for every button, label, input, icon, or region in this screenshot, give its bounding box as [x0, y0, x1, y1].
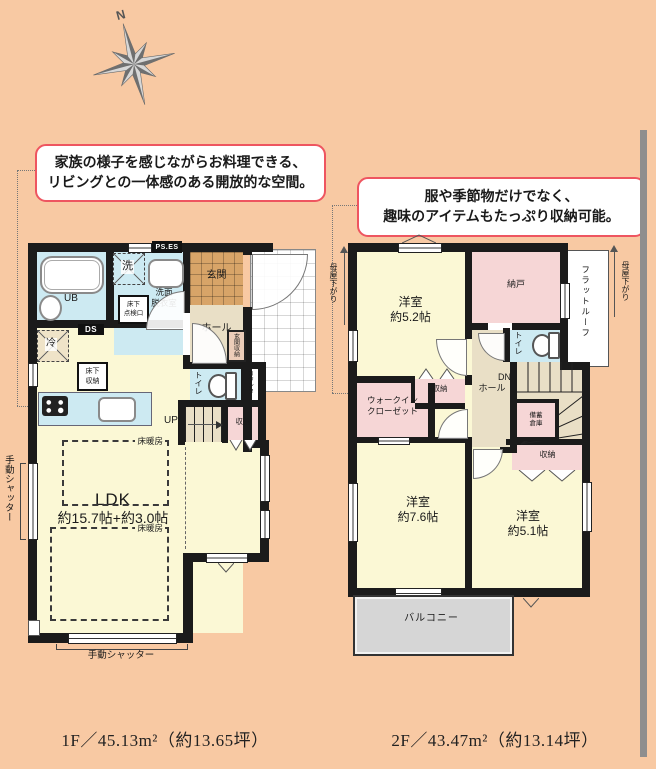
window: [560, 283, 570, 319]
dimension-arrow: [340, 246, 348, 253]
shutter-mark-icon: [523, 598, 539, 608]
genkan-storage-label: 玄関収納: [231, 333, 239, 357]
dimension-line: [614, 249, 615, 317]
genkan-storage: 玄関収納: [227, 330, 246, 362]
ps-es-label: PS.ES: [155, 244, 178, 251]
stockpile-storage-label: 備蓄 倉庫: [530, 412, 543, 429]
floor2-area-label: 2F／43.47m²（約13.14坪）: [350, 726, 640, 751]
window: [582, 482, 592, 532]
toilet-tank-icon: [548, 332, 560, 359]
ds-badge: DS: [78, 324, 104, 335]
underfloor-storage-label: 床下 収納: [86, 367, 100, 385]
up-arrow: [188, 424, 216, 425]
callout-storage-line2: 趣味のアイテムもたっぷり収納可能。: [383, 207, 620, 227]
callout-kitchen-line1: 家族の様子を感じながらお料理できる、: [55, 153, 307, 173]
toilet-label: トイレ: [193, 371, 203, 395]
up-arrow-head: [216, 421, 223, 429]
callout-storage: 服や季節物だけでなく、 趣味のアイテムもたっぷり収納可能。: [357, 177, 646, 237]
shutter-label: 手動シャッター: [2, 455, 14, 522]
folding-door-icon: [229, 440, 258, 451]
counter-label: カウンター: [245, 370, 253, 400]
leader-line: [332, 205, 357, 206]
floor-hatch-label: 床下 点検口: [124, 301, 144, 318]
floor-heating-label: 床暖房: [135, 523, 165, 534]
room51-label: 洋室 約5.1帖: [478, 509, 578, 539]
wall: [28, 243, 37, 643]
floor1-area-label: 1F／45.13m²（約13.65坪）: [25, 726, 305, 751]
wall: [178, 400, 185, 445]
window: [28, 463, 38, 540]
floorplan-page: N 家族の様子を感じながらお料理できる、 リビングとの一体感のある開放的な空間。…: [0, 0, 656, 769]
leader-line: [17, 170, 35, 171]
wic-label: ウォークイン クローゼット: [354, 395, 431, 416]
storage-1f-label: 収納: [228, 417, 258, 426]
window: [128, 243, 152, 253]
storage-2f-upper-label: 収納: [415, 384, 465, 393]
window: [398, 243, 442, 253]
toilet-2f-label: トイレ: [513, 331, 523, 355]
callout-kitchen: 家族の様子を感じながらお料理できる、 リビングとの一体感のある開放的な空間。: [35, 144, 326, 202]
moya-sagari-label: 母屋下がり: [328, 263, 338, 303]
wall: [258, 400, 266, 443]
bath-basin: [39, 295, 62, 321]
dimension-line: [344, 251, 345, 325]
window: [260, 510, 270, 539]
ub-label: UB: [64, 293, 78, 306]
balcony: [353, 595, 514, 656]
wall: [472, 323, 560, 330]
room76-label: 洋室 約7.6帖: [368, 495, 468, 525]
genkan-label: 玄関: [190, 270, 243, 283]
compass-north-label: N: [115, 7, 127, 23]
shutter-mark-icon: [218, 563, 234, 573]
wall: [465, 375, 472, 385]
kitchen-sink: [98, 397, 136, 422]
window: [206, 553, 248, 563]
wall: [348, 243, 567, 252]
wall: [348, 243, 357, 597]
up-label: UP: [164, 415, 178, 428]
door-opening: [183, 313, 190, 355]
hall-2f-label: ホール: [472, 383, 512, 394]
window: [348, 483, 358, 542]
washroom-sink: [148, 259, 184, 288]
compass-rose-icon: N: [86, 4, 182, 111]
underfloor-storage: 床下 収納: [77, 362, 108, 391]
right-edge-bar: [640, 130, 647, 757]
room52-label: 洋室 約5.2帖: [363, 295, 458, 325]
window: [348, 330, 358, 362]
ds-label: DS: [85, 325, 97, 334]
stove-icon: [42, 396, 68, 416]
window: [260, 455, 270, 502]
wall: [243, 243, 252, 255]
shutter-bracket: [20, 463, 26, 540]
folding-door-icon: [518, 470, 578, 482]
fridge-label: 冷: [45, 338, 57, 351]
leader-line: [17, 170, 18, 406]
nando-label: 納戸: [472, 279, 560, 290]
floor-heating-zone: 床暖房: [62, 440, 169, 506]
stockpile-storage: 備蓄 倉庫: [513, 399, 559, 441]
window: [68, 633, 177, 644]
floor-heating-zone: 床暖房: [50, 527, 169, 621]
callout-kitchen-line2: リビングとの一体感のある開放的な空間。: [48, 173, 314, 193]
floor-hatch: 床下 点検口: [118, 295, 149, 324]
window: [28, 620, 40, 636]
floor2-plan: フラットルーフ: [348, 243, 610, 663]
shutter-label: 手動シャッター: [56, 650, 186, 662]
bathtub: [40, 256, 104, 294]
wall: [582, 362, 590, 597]
floor1-plan: UB 洗 PS.ES 洗面 脱衣室 床下 点検口 DS 冷 床下 収納 UP 玄…: [28, 243, 318, 663]
dn-label: DN: [498, 372, 511, 383]
wall: [357, 376, 415, 383]
callout-storage-line1: 服や季節物だけでなく、: [425, 187, 579, 207]
ps-es-badge: PS.ES: [152, 241, 182, 253]
nook-room: [185, 443, 260, 553]
window: [28, 363, 38, 387]
floor-heating-label: 床暖房: [135, 436, 165, 447]
moya-sagari-label: 母屋下がり: [620, 261, 630, 301]
bay-window-icon: [402, 234, 436, 243]
dimension-arrow: [610, 245, 618, 252]
wall: [465, 243, 472, 339]
balcony-label: バルコニー: [353, 613, 510, 626]
wall: [241, 369, 243, 400]
ldk-size-label: 約15.7帖+約3.0帖: [33, 510, 193, 528]
storage-2f-lower-label: 収納: [512, 450, 583, 460]
toilet-tank-icon: [225, 372, 237, 400]
washer-label: 洗: [121, 260, 134, 274]
flat-roof-label: フラットルーフ: [580, 265, 591, 339]
window: [378, 437, 410, 445]
wall: [183, 553, 193, 643]
